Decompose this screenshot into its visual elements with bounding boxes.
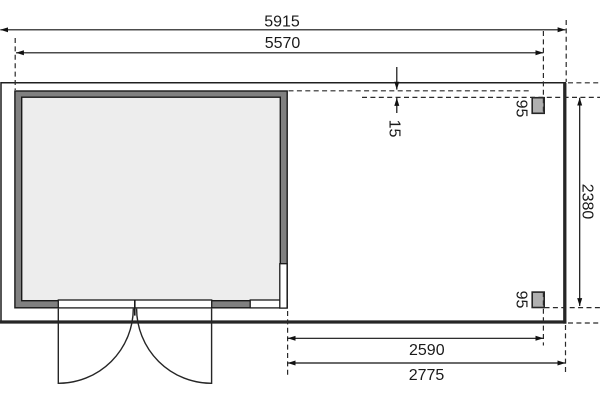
svg-text:2380: 2380 <box>578 184 595 220</box>
svg-text:5570: 5570 <box>265 35 301 52</box>
svg-text:95: 95 <box>513 100 530 118</box>
svg-text:95: 95 <box>513 291 530 309</box>
svg-text:15: 15 <box>386 120 403 138</box>
svg-text:2590: 2590 <box>409 342 445 359</box>
svg-text:2775: 2775 <box>409 367 445 384</box>
svg-text:5915: 5915 <box>264 14 300 31</box>
